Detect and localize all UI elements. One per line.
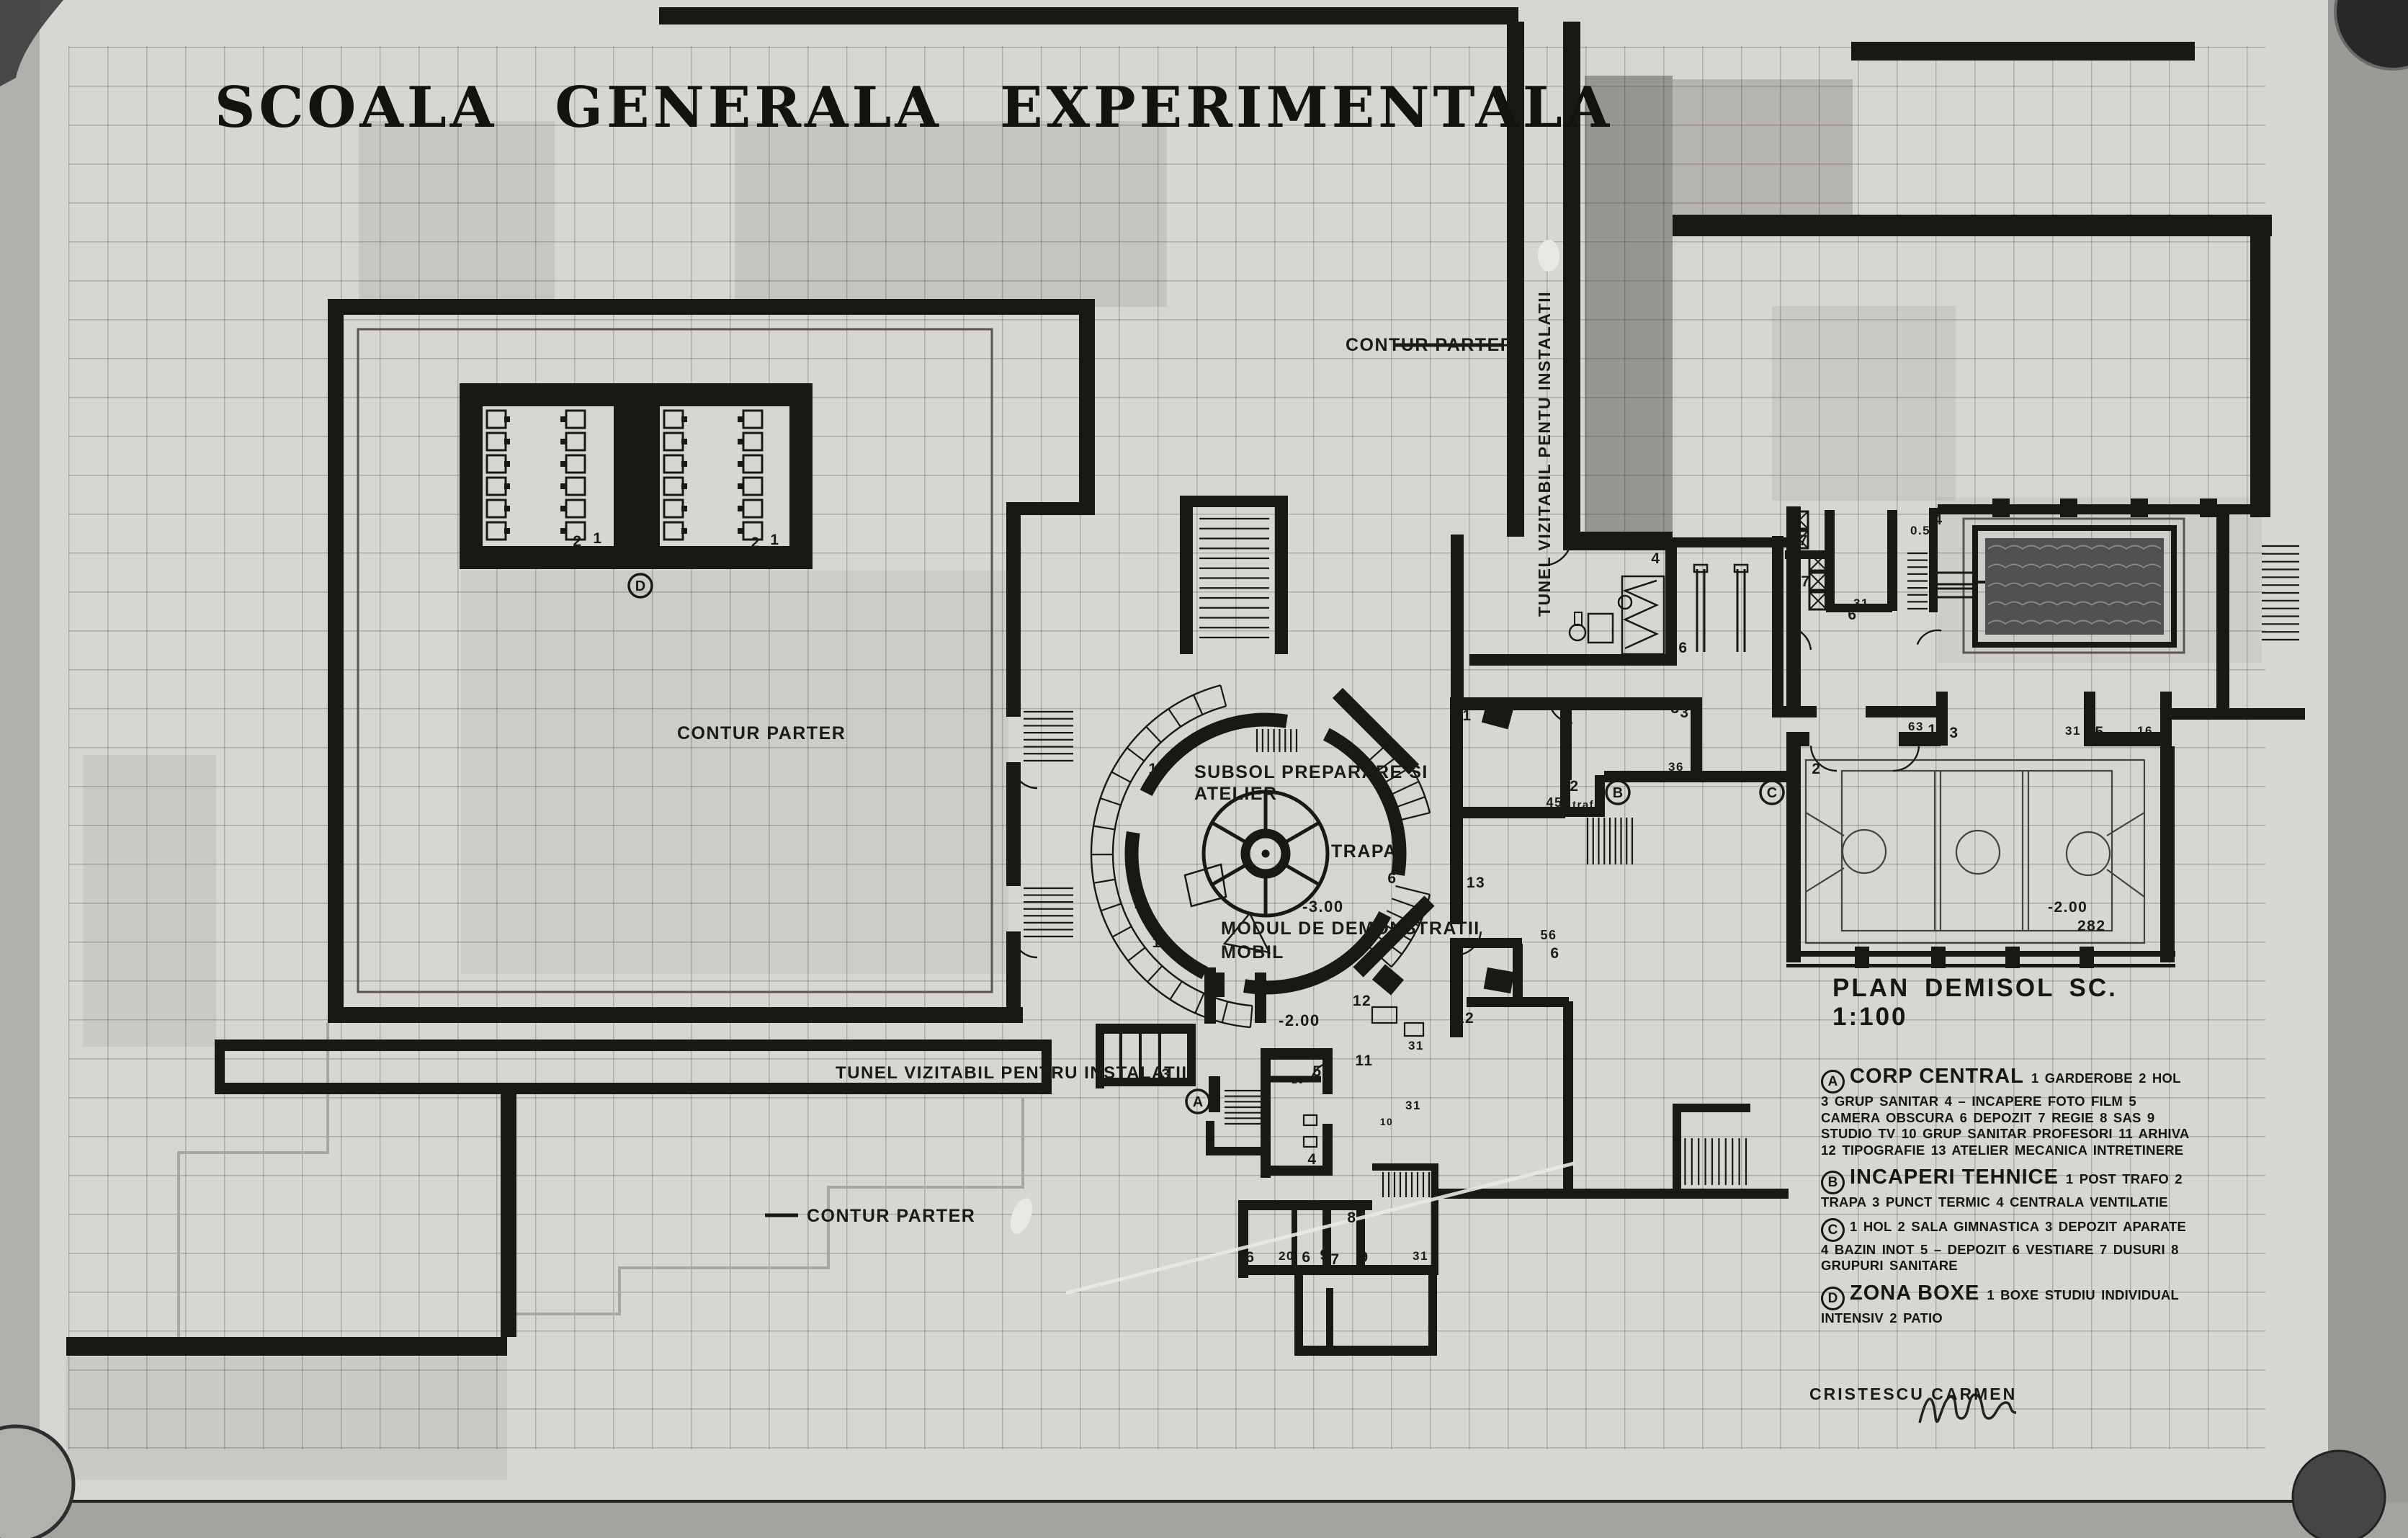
legend-item: C1 HOL 2 SALA GIMNASTICA 3 DEPOZIT APARA… — [1821, 1218, 2190, 1274]
plan-label: -3.00 — [1302, 898, 1344, 916]
plan-label: 3 — [1670, 700, 1680, 717]
plan-label: 7 — [1330, 1251, 1340, 1268]
plan-label: 1 — [593, 530, 602, 547]
plan-label: 4 — [1933, 511, 1943, 528]
plan-label: 10 — [1292, 1074, 1305, 1086]
plan-label: 5 — [1312, 1063, 1322, 1080]
section-marker-letter: C — [1767, 785, 1777, 801]
plan-label: 12 — [1353, 993, 1371, 1009]
plan-label: 1 — [1148, 761, 1158, 777]
plan-label: CONTUR PARTER — [1346, 335, 1514, 355]
section-marker-c: C — [1760, 781, 1783, 804]
plan-label: 20 — [1279, 1249, 1294, 1263]
plan-label: 31 — [1405, 1099, 1421, 1112]
plan-label: 11 — [1355, 1052, 1373, 1069]
plan-label: 6 — [1455, 945, 1464, 962]
plan-label: 31 — [1413, 1249, 1428, 1263]
plan-label: 6 — [1348, 746, 1357, 762]
plan-label: TUNEL VIZITABIL PENTRU INSTALATII — [836, 1063, 1188, 1083]
section-marker-letter: B — [1613, 785, 1623, 801]
plan-label: 10 — [1380, 1116, 1394, 1127]
plan-label: 9 — [1359, 1249, 1369, 1266]
plan-label: MOBIL — [1221, 942, 1284, 962]
plan-label: TRAPA — [1331, 841, 1397, 862]
section-marker-b: B — [1606, 781, 1629, 804]
plan-label: 1 — [1928, 722, 1937, 738]
legend-item-name: CORP CENTRAL — [1850, 1065, 2024, 1088]
plan-label: -2.00 — [2048, 899, 2087, 916]
plan-label: ATELIER — [1194, 784, 1278, 804]
plan-label: 31 — [2065, 724, 2081, 738]
plan-label: 4 — [1651, 550, 1660, 567]
legend-letter-badge: C — [1821, 1218, 1845, 1242]
plan-label: 2 — [1570, 778, 1579, 795]
plan-label: 7 — [1799, 532, 1808, 549]
plan-label: 1 — [770, 532, 779, 548]
plan-label: 1 — [1152, 934, 1161, 951]
legend-heading: PLAN DEMISOL SC. 1:100 — [1832, 974, 2190, 1032]
plan-label: 6 — [1387, 870, 1397, 887]
plan-label: 3 — [1949, 725, 1959, 741]
plan-label: TUNEL VIZITABIL PENTU INSTALATII — [1535, 291, 1554, 617]
plan-label: CONTUR PARTER — [807, 1206, 975, 1226]
plan-label: 31 — [1853, 596, 1869, 610]
plan-label: 2 — [573, 533, 582, 550]
plan-label: MODUL DE DEMONSTRATII — [1221, 918, 1480, 939]
legend: PLAN DEMISOL SC. 1:100 ACORP CENTRAL1 GA… — [1821, 974, 2190, 1333]
plan-label: 2 — [751, 535, 760, 551]
plan-label: 9 — [1320, 1247, 1329, 1264]
plan-label: 6 — [1302, 1249, 1311, 1266]
plan-label: 6 — [1550, 945, 1559, 962]
section-marker-a: A — [1186, 1090, 1209, 1113]
plan-label: 6 — [1245, 1249, 1255, 1266]
plan-label: 5 — [2095, 724, 2104, 741]
legend-letter-badge: D — [1821, 1287, 1845, 1310]
plan-label: CONTUR PARTER — [677, 723, 846, 743]
legend-letter-badge: B — [1821, 1171, 1845, 1194]
gym-courts — [1806, 760, 2144, 943]
plan-label: 3 — [1161, 1066, 1171, 1083]
plan-label: trafo — [1572, 799, 1602, 811]
plan-label: 36 — [1668, 760, 1684, 774]
plan-label: 12 — [1456, 1010, 1474, 1027]
plan-label: 31 — [1408, 1039, 1424, 1052]
legend-item-detail: 1 HOL 2 SALA GIMNASTICA 3 DEPOZIT APARAT… — [1821, 1219, 2186, 1274]
legend-items: ACORP CENTRAL1 GARDEROBE 2 HOL 3 GRUP SA… — [1821, 1065, 2190, 1326]
section-marker-letter: D — [635, 578, 645, 594]
plan-label: 55 — [1314, 1165, 1328, 1176]
section-marker-letter: A — [1193, 1094, 1203, 1110]
plan-label: 16 — [2137, 724, 2153, 738]
plan-label: -2.00 — [1279, 1011, 1320, 1029]
plan-label: 8 — [1347, 1210, 1356, 1226]
plan-label: 45 — [1546, 795, 1562, 810]
legend-letter-badge: A — [1821, 1070, 1845, 1094]
photograph-of-drawing: SCOALA GENERALA EXPERIMENTALA ABCDCONTUR… — [0, 0, 2408, 1538]
plan-label: 7 — [1801, 573, 1810, 590]
legend-item: ACORP CENTRAL1 GARDEROBE 2 HOL 3 GRUP SA… — [1821, 1065, 2190, 1158]
plan-label: 6 — [1678, 640, 1688, 656]
plan-label: 282 — [2077, 918, 2106, 934]
plan-label: 1 — [1134, 895, 1143, 912]
legend-item-name: ZONA BOXE — [1850, 1282, 1979, 1305]
plan-label: 56 — [1540, 928, 1557, 942]
legend-item-name: INCAPERI TEHNICE — [1850, 1166, 2059, 1189]
author-signature: CRISTESCU CARMEN — [1809, 1385, 2017, 1404]
legend-item: BINCAPERI TEHNICE1 POST TRAFO 2 TRAPA 3 … — [1821, 1166, 2190, 1211]
drawing-title: SCOALA GENERALA EXPERIMENTALA — [215, 75, 1613, 140]
plan-label: 63 — [1908, 720, 1924, 733]
plan-label: 1 — [1462, 707, 1472, 724]
legend-item: DZONA BOXE1 BOXE STUDIU INDIVIDUAL INTEN… — [1821, 1282, 2190, 1327]
plan-label: 13 — [1467, 875, 1485, 891]
plan-label: 2 — [1812, 761, 1821, 777]
plan-label: 3 — [1680, 705, 1689, 721]
plan-label: SUBSOL PREPARARE SI — [1194, 762, 1428, 782]
